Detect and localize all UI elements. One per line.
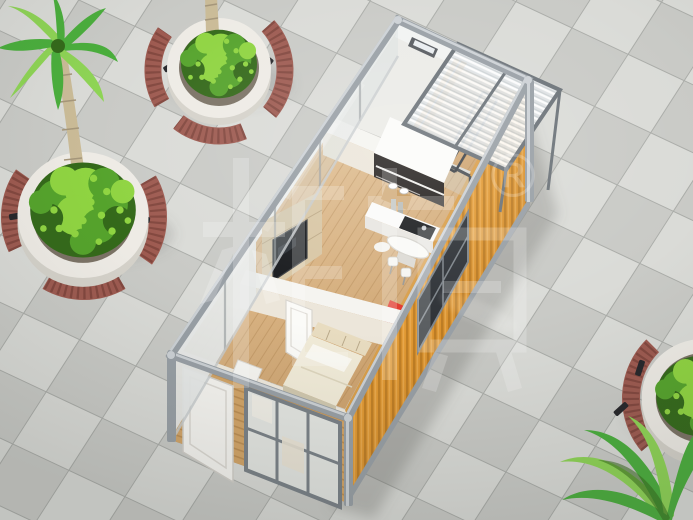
planter-top-center: [153, 0, 285, 136]
planter-left: [9, 50, 158, 291]
bowl: [400, 188, 409, 194]
palm-crown: [0, 0, 118, 110]
palm-tree-top-left: [0, 0, 118, 110]
registered-mark: ®: [483, 142, 543, 212]
scene-drawing: ®: [0, 0, 693, 520]
render-scene: ® 3D cutaway render of a container house…: [0, 0, 693, 520]
